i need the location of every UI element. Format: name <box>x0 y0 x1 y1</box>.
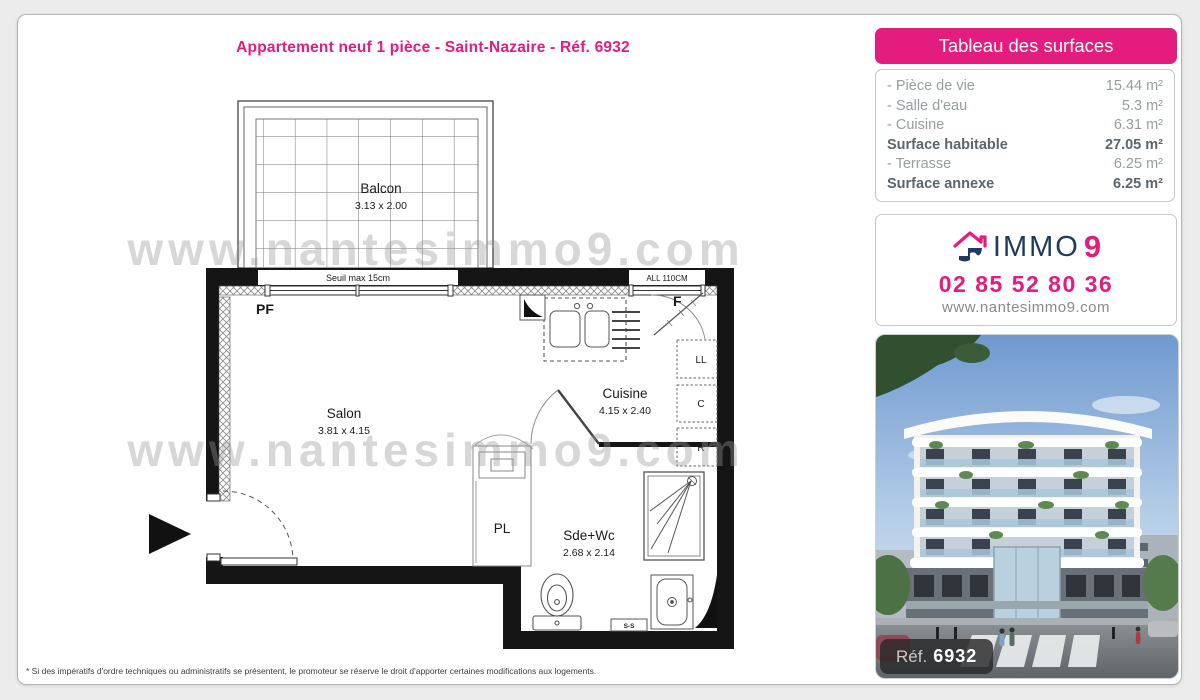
balcony-dims: 3.13 x 2.00 <box>355 200 407 212</box>
surface-label: Surface annexe <box>887 175 994 195</box>
surface-row: - Cuisine 6.31 m² <box>887 116 1163 136</box>
towel-dryer: S-S <box>611 619 647 631</box>
sdewc-dims: 2.68 x 2.14 <box>563 547 615 559</box>
salon-label: Salon <box>327 406 362 421</box>
brand-9-text: 9 <box>1084 229 1101 265</box>
c-label: C <box>697 399 704 410</box>
surface-value: 6.31 m² <box>1114 116 1163 136</box>
ll-label: LL <box>695 355 707 366</box>
shower <box>644 472 704 560</box>
cuisine-dims: 4.15 x 2.40 <box>599 405 651 417</box>
page-title: Appartement neuf 1 pièce - Saint-Nazaire… <box>38 39 828 57</box>
entrance-door <box>207 491 297 565</box>
surface-value: 27.05 m² <box>1105 136 1163 156</box>
closet-pl <box>473 435 533 566</box>
ss-label: S-S <box>624 623 636 630</box>
kitchen-counter <box>544 298 640 361</box>
ref-number: 6932 <box>933 646 977 666</box>
window-pf <box>265 285 453 296</box>
reference-badge: Réf.6932 <box>880 639 993 674</box>
allege-label: ALL 110CM <box>646 274 688 283</box>
balcony: Balcon 3.13 x 2.00 <box>238 101 493 268</box>
surface-row: - Terrasse 6.25 m² <box>887 155 1163 175</box>
entrance-arrow-icon <box>149 514 191 554</box>
house-icon <box>951 229 989 265</box>
flyer-card: Appartement neuf 1 pièce - Saint-Nazaire… <box>17 14 1182 685</box>
pl-label: PL <box>494 521 511 536</box>
surface-value: 5.3 m² <box>1122 97 1163 117</box>
building-photo: Réf.6932 <box>875 334 1179 679</box>
f-label: F <box>673 293 682 309</box>
surfaces-header: Tableau des surfaces <box>875 28 1177 64</box>
surface-label: - Terrasse <box>887 155 951 175</box>
floor-plan: Balcon 3.13 x 2.00 Seuil max 15cm <box>41 81 841 656</box>
surface-label: - Pièce de vie <box>887 77 975 97</box>
toilet <box>533 574 581 630</box>
agency-logo: IMMO9 <box>876 229 1176 265</box>
page-background: Appartement neuf 1 pièce - Saint-Nazaire… <box>0 0 1200 700</box>
salon-dims: 3.81 x 4.15 <box>318 425 370 437</box>
sdewc-label: Sde+Wc <box>563 528 615 543</box>
surface-row: - Pièce de vie 15.44 m² <box>887 77 1163 97</box>
bathroom-duct <box>695 575 717 628</box>
ref-label: Réf. <box>896 647 927 666</box>
surfaces-table: - Pièce de vie 15.44 m² - Salle d'eau 5.… <box>875 69 1175 202</box>
surface-value: 6.25 m² <box>1113 175 1163 195</box>
footnote: * Si des impératifs d'ordre techniques o… <box>26 666 926 676</box>
agency-card: IMMO9 02 85 52 80 36 www.nantesimmo9.com <box>875 214 1177 326</box>
parked-car <box>1148 621 1178 637</box>
kitchen-duct <box>520 295 545 320</box>
surface-label: - Salle d'eau <box>887 97 967 117</box>
surface-row: - Salle d'eau 5.3 m² <box>887 97 1163 117</box>
seuil-label: Seuil max 15cm <box>326 273 390 283</box>
surface-value: 6.25 m² <box>1114 155 1163 175</box>
main-building <box>904 411 1152 623</box>
floor-plan-drawing: Balcon 3.13 x 2.00 Seuil max 15cm <box>41 81 841 656</box>
glass-entrance <box>994 547 1060 623</box>
brand-immo-text: IMMO <box>993 231 1080 264</box>
washbasin <box>651 575 693 629</box>
cuisine-label: Cuisine <box>602 386 647 401</box>
pf-label: PF <box>256 301 274 317</box>
surface-row-total: Surface habitable 27.05 m² <box>887 136 1163 156</box>
surface-label: Surface habitable <box>887 136 1008 156</box>
phone-number: 02 85 52 80 36 <box>876 271 1176 298</box>
building-illustration <box>876 335 1178 678</box>
surface-value: 15.44 m² <box>1106 77 1163 97</box>
window-f <box>629 285 705 296</box>
balcony-label: Balcon <box>360 181 401 196</box>
website-link[interactable]: www.nantesimmo9.com <box>876 299 1176 316</box>
surface-row-total: Surface annexe 6.25 m² <box>887 175 1163 195</box>
surface-label: - Cuisine <box>887 116 944 136</box>
